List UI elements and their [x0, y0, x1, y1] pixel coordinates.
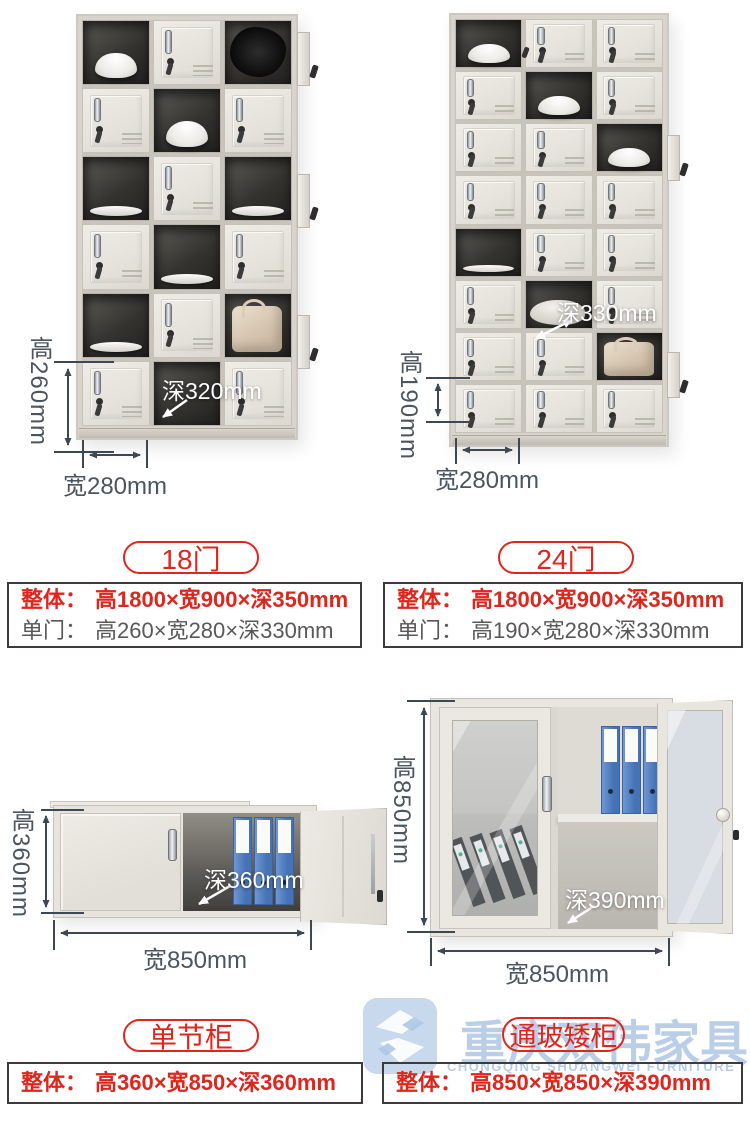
- item-bowl: [468, 44, 510, 63]
- dim-depth-label: 深330mm: [557, 294, 657, 328]
- door-handle: [537, 391, 544, 409]
- dim-width-label: 宽280mm: [58, 466, 172, 501]
- item-plate: [232, 206, 284, 216]
- spec-label: 单门：: [397, 618, 463, 643]
- door-handle: [94, 234, 101, 258]
- door-vents: [495, 314, 515, 322]
- door-knob: [716, 808, 730, 822]
- locker-door: [455, 280, 522, 329]
- door-vents: [193, 202, 213, 213]
- door-vents: [495, 209, 515, 217]
- locker-door: [224, 224, 292, 289]
- door-handle: [94, 371, 101, 395]
- locker-door: [596, 384, 663, 433]
- door-vents: [264, 133, 284, 144]
- photo-locker-24: [449, 13, 669, 447]
- product-label-24-door: 24门: [498, 541, 634, 574]
- door-vents: [565, 262, 585, 270]
- door-vents: [193, 338, 213, 349]
- locker-open-cell: [455, 228, 522, 277]
- door-handle: [165, 166, 172, 190]
- dim-width-label: 宽850mm: [133, 940, 257, 975]
- door-handle: [467, 131, 474, 149]
- locker-base: [79, 428, 295, 438]
- door-handle: [608, 27, 615, 45]
- open-door-panel: [297, 315, 310, 369]
- door-vents: [495, 105, 515, 113]
- shelf: [558, 814, 666, 822]
- locker-door: [455, 71, 522, 120]
- open-door-panel: [297, 32, 310, 86]
- spec-line-single-door: 单门：高190×宽280×深330mm: [397, 616, 741, 646]
- spec-label: 整体：: [21, 1070, 87, 1095]
- locker-door: [455, 332, 522, 381]
- locker-door: [455, 175, 522, 224]
- door-vents: [565, 366, 585, 374]
- locker-open-cell: [153, 88, 221, 153]
- locker-door: [525, 123, 592, 172]
- item-bag: [232, 306, 282, 352]
- door-lock: [377, 890, 383, 902]
- item-bowl: [95, 53, 137, 78]
- door-lock: [733, 830, 739, 840]
- locker-door: [525, 228, 592, 277]
- locker-base: [452, 435, 666, 445]
- item-bowl: [608, 148, 650, 167]
- locker-door: [596, 228, 663, 277]
- open-door: [300, 808, 387, 925]
- spec-line-overall: 整体：高1800×宽900×深350mm: [21, 585, 360, 615]
- door-ridge: [342, 816, 344, 917]
- locker-door: [596, 175, 663, 224]
- door-vents: [122, 406, 142, 417]
- dim-height-label: 高190mm: [396, 350, 420, 460]
- dim-depth-label: 深390mm: [565, 881, 665, 915]
- door-handle: [608, 183, 615, 201]
- spec-value: 高1800×宽900×深350mm: [471, 587, 724, 612]
- item-bowl: [538, 96, 580, 115]
- spec-value: 高850×宽850×深390mm: [470, 1070, 711, 1095]
- item-clothes: [230, 27, 287, 78]
- open-door-panel: [667, 352, 680, 398]
- locker-door: [455, 384, 522, 433]
- door-handle: [165, 303, 172, 327]
- glass-reflection: [453, 721, 537, 915]
- locker-door: [525, 175, 592, 224]
- open-door-panel: [297, 174, 310, 228]
- door-handle: [168, 829, 177, 861]
- center-stile: [551, 707, 558, 929]
- door-handle: [608, 79, 615, 97]
- spec-label: 单门：: [21, 618, 87, 643]
- door-vents: [565, 209, 585, 217]
- locker-door: [153, 20, 221, 85]
- locker-open-cell: [596, 332, 663, 381]
- door-handle: [537, 339, 544, 357]
- locker-open-cell: [224, 156, 292, 221]
- lock-rod: [371, 834, 375, 894]
- locker-open-cell: [82, 20, 150, 85]
- door-handle: [94, 98, 101, 122]
- door-handle: [467, 79, 474, 97]
- door-vents: [635, 418, 655, 426]
- item-plate: [90, 342, 142, 352]
- locker-door: [525, 332, 592, 381]
- item-plate: [90, 206, 142, 216]
- locker-door: [153, 156, 221, 221]
- locker-door: [455, 123, 522, 172]
- spec-box-single-cabinet: 整体：高360×宽850×深360mm: [7, 1062, 363, 1104]
- door-handle: [537, 27, 544, 45]
- dim-depth-label: 深320mm: [162, 372, 262, 406]
- locker-door: [525, 19, 592, 68]
- dim-width-label: 宽850mm: [495, 954, 619, 989]
- item-bowl: [166, 121, 208, 146]
- door-handle: [537, 235, 544, 253]
- door-vents: [122, 133, 142, 144]
- locker-door: [82, 361, 150, 426]
- locker-open-cell: [82, 156, 150, 221]
- dim-width-label: 宽280mm: [430, 460, 544, 495]
- spec-box-glass-cabinet: 整体：高850×宽850×深390mm: [382, 1062, 743, 1104]
- door-vents: [635, 53, 655, 61]
- locker-open-cell: [224, 293, 292, 358]
- binder: [601, 726, 620, 814]
- binder: [622, 726, 641, 814]
- door-handle: [467, 391, 474, 409]
- door-vents: [495, 157, 515, 165]
- locker-18-grid: [82, 20, 292, 426]
- glass-pane: [452, 720, 538, 916]
- door-handle: [467, 183, 474, 201]
- door-vents: [635, 105, 655, 113]
- door-handle: [608, 391, 615, 409]
- spec-value: 高360×宽850×深360mm: [95, 1070, 336, 1095]
- glass-pane: [667, 710, 723, 924]
- door-handle: [467, 339, 474, 357]
- spec-line-overall: 整体：高1800×宽900×深350mm: [397, 585, 741, 615]
- locker-open-cell: [224, 20, 292, 85]
- product-label-single-cabinet: 单节柜: [123, 1019, 259, 1052]
- locker-door: [82, 88, 150, 153]
- door-handle: [537, 131, 544, 149]
- door-vents: [193, 65, 213, 76]
- spec-line-overall: 整体：高360×宽850×深360mm: [21, 1068, 361, 1098]
- spec-box-24-door: 整体：高1800×宽900×深350mm 单门：高190×宽280×深330mm: [383, 582, 743, 648]
- spec-value: 高260×宽280×深330mm: [95, 618, 333, 643]
- door-handle: [165, 30, 172, 54]
- door-vents: [635, 209, 655, 217]
- door-vents: [635, 262, 655, 270]
- product-label-glass-cabinet: 通玻矮柜: [502, 1017, 625, 1052]
- spec-line-overall: 整体：高850×宽850×深390mm: [396, 1068, 741, 1098]
- glass-door-closed: [439, 707, 551, 929]
- product-spec-sheet: 重庆双伟家具 CHONGQING SHUANGWEI FURNITURE: [0, 0, 750, 1133]
- spec-label: 整体：: [397, 587, 463, 612]
- locker-door: [224, 88, 292, 153]
- door-vents: [565, 418, 585, 426]
- locker-open-cell: [153, 224, 221, 289]
- spec-value: 高1800×宽900×深350mm: [95, 587, 348, 612]
- locker-door: [596, 19, 663, 68]
- open-door-panel: [667, 135, 680, 181]
- spec-label: 整体：: [396, 1070, 462, 1095]
- door-vents: [565, 53, 585, 61]
- closed-door: [60, 813, 181, 911]
- door-vents: [122, 270, 142, 281]
- door-vents: [495, 366, 515, 374]
- locker-open-cell: [525, 71, 592, 120]
- door-handle: [608, 235, 615, 253]
- spec-label: 整体：: [21, 587, 87, 612]
- door-handle: [236, 234, 243, 258]
- spec-line-single-door: 单门：高260×宽280×深330mm: [21, 616, 360, 646]
- spec-value: 高190×宽280×深330mm: [471, 618, 709, 643]
- item-bag: [604, 342, 654, 376]
- door-handle: [467, 287, 474, 305]
- door-handle: [542, 776, 552, 812]
- door-handle: [537, 183, 544, 201]
- dim-height-label: 高260mm: [26, 336, 50, 446]
- spec-box-18-door: 整体：高1800×宽900×深350mm 单门：高260×宽280×深330mm: [7, 582, 362, 648]
- dim-height-label: 高850mm: [389, 755, 413, 865]
- door-handle: [236, 98, 243, 122]
- locker-open-cell: [596, 123, 663, 172]
- locker-door: [82, 224, 150, 289]
- door-vents: [495, 418, 515, 426]
- item-plate: [463, 265, 514, 273]
- locker-24-grid: [455, 19, 663, 433]
- locker-door: [525, 384, 592, 433]
- locker-door: [153, 293, 221, 358]
- door-vents: [264, 270, 284, 281]
- locker-door: [596, 71, 663, 120]
- door-vents: [565, 157, 585, 165]
- blue-binders: [601, 726, 662, 814]
- item-plate: [161, 274, 213, 284]
- product-label-18-door: 18门: [123, 541, 259, 574]
- dim-height-label: 高360mm: [8, 808, 32, 918]
- door-vents: [264, 406, 284, 417]
- locker-open-cell: [455, 19, 522, 68]
- dim-depth-label: 深360mm: [204, 861, 304, 895]
- locker-open-cell: [82, 293, 150, 358]
